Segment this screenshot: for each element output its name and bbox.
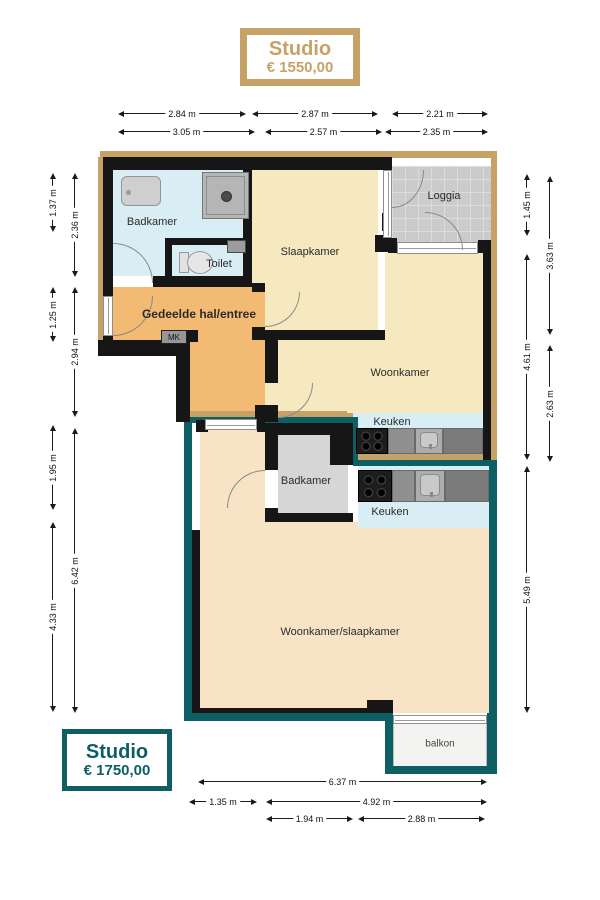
wall-woonslaap-left [192,530,200,713]
dim-right-outer-1: 3.63 m [545,176,554,335]
dim-right-inner-3: 5.49 m [522,466,531,713]
dim-top1-1: 2.84 m [118,109,246,118]
room-woonkamer-right [385,253,483,413]
label-toilet: Toilet [206,258,232,270]
stove-icon-bottom [358,470,392,502]
label-loggia: Loggia [427,190,460,202]
label-woonkamer: Woonkamer [370,367,429,379]
dim-top1-2: 2.87 m [252,109,378,118]
dim-left-inner-3: 6.42 m [70,428,79,713]
wall-badkamer2-top [265,423,353,435]
window-woonslaap-top [205,419,257,430]
window-balkon [393,715,487,724]
dim-left-outer-2: 1.25 m [48,287,57,342]
wall-mk-block [186,330,198,342]
dim-top1-3: 2.21 m [392,109,488,118]
shower-icon [202,172,249,219]
wall-loggia-sill-right [478,240,491,253]
sink-icon [121,176,161,206]
wall-halcol-right [265,340,278,383]
room-woonslaap-mid [265,522,358,713]
label-woonslaap: Woonkamer/slaapkamer [280,626,399,638]
studio-1750-price: € 1750,00 [84,763,151,780]
studio-1550-price: € 1550,00 [267,60,334,77]
wall-halcol-left [176,340,190,422]
dim-bottom2-1: 1.35 m [189,797,257,806]
dim-bottom2-2: 4.92 m [266,797,487,806]
dim-left-outer-4: 4.33 m [48,522,57,712]
studio-1550-badge: Studio € 1550,00 [240,28,360,86]
teal-border-bottom [184,713,393,721]
wall-woonkamer-right [483,253,491,460]
label-hal: Gedeelde hal/entree [142,307,256,321]
teal-border-top2 [353,460,497,466]
studio-1550-title: Studio [269,38,331,60]
teal-border-balkon-left [385,713,393,773]
dim-left-outer-1: 1.37 m [48,173,57,232]
dim-top2-2: 2.57 m [265,127,382,136]
wall-slaapkamer-bottom [252,330,385,340]
teal-border-right [489,460,497,720]
label-balkon: balkon [425,739,454,750]
dim-left-inner-1: 2.36 m [70,173,79,277]
dim-right-outer-2: 2.63 m [545,345,554,462]
meter-cupboard-box: MK [161,330,187,344]
counter-bottom-b [445,470,489,502]
wall-balkon-block [367,700,393,713]
room-woonslaap-left [200,423,265,713]
entrance-door-leaf [103,296,113,336]
room-woonslaap-right [358,528,489,713]
wall-woonslaap-bottom [200,708,367,713]
teal-border-left [184,417,192,721]
dim-top2-1: 3.05 m [118,127,255,136]
wall-hal-slaap-a [252,283,265,292]
dim-bottom1-1: 6.37 m [198,777,487,786]
dim-bottom3-2: 2.88 m [358,814,485,823]
room-hal-column [190,340,265,417]
tan-border-right [491,158,497,460]
wall-badkamer2-shaft [330,435,353,465]
label-badkamer-top: Badkamer [127,216,177,228]
counter-top-b [443,428,483,454]
kitchen-sink-icon-bottom [415,470,445,502]
wall-badkamer2-left-a [265,435,278,470]
dim-right-inner-1: 1.45 m [522,174,531,236]
dim-left-inner-2: 2.94 m [70,287,79,417]
dim-right-inner-2: 4.61 m [522,254,531,460]
wall-badkamer2-bottom [265,513,353,522]
wall-window2-block-b [257,420,265,432]
counter-bottom-a [392,470,415,502]
teal-border-balkon-bottom [385,766,497,774]
label-slaapkamer: Slaapkamer [281,246,340,258]
kitchen-sink-icon-top [415,428,443,454]
label-keuken-top: Keuken [373,416,410,428]
dim-bottom3-1: 1.94 m [266,814,353,823]
label-badkamer-bottom: Badkamer [281,475,331,487]
wall-loggia-sill-left [388,238,397,253]
label-keuken-bottom: Keuken [371,506,408,518]
counter-top-a [388,428,415,454]
floorplan-canvas: Studio € 1550,00 Studio € 1750,00 [0,0,600,900]
teal-border-balkon-right [487,713,497,773]
vent-icon [227,240,246,253]
window-slaapkamer-loggia [383,170,392,238]
wall-badkamer-bottom-a [103,276,113,287]
dim-left-outer-3: 1.95 m [48,425,57,510]
studio-1750-title: Studio [86,741,148,763]
stove-icon-top [356,428,388,454]
studio-1750-badge: Studio € 1750,00 [62,729,172,791]
dim-top2-3: 2.35 m [385,127,488,136]
wall-toilet-left [165,245,172,283]
